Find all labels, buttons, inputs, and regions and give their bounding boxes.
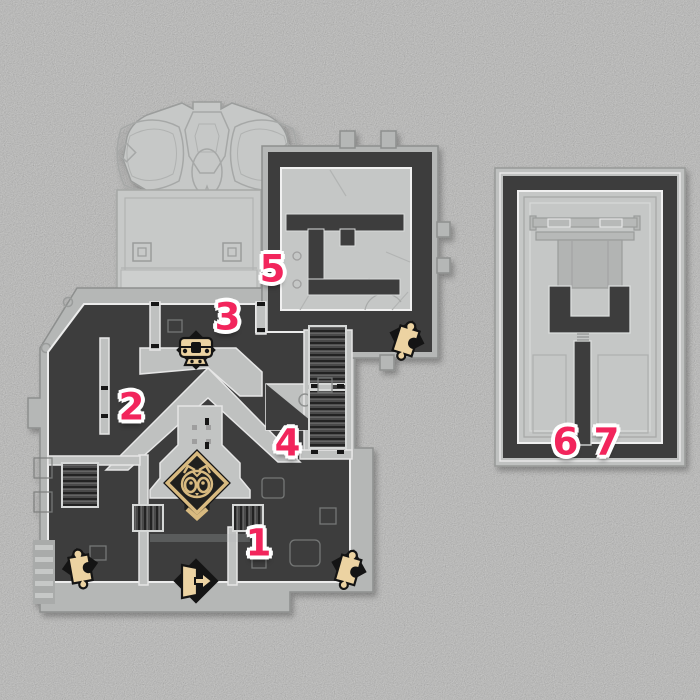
stairs-left <box>62 463 98 507</box>
stairs-right-lower <box>309 390 346 448</box>
side-map <box>495 168 685 466</box>
route-marker-2[interactable]: 2 <box>119 389 144 426</box>
route-marker-7[interactable]: 7 <box>594 424 619 461</box>
puzzle-piece-icon[interactable] <box>48 534 113 599</box>
route-marker-1[interactable]: 1 <box>246 525 271 562</box>
game-map-screenshot: 1 2 3 4 5 6 7 <box>0 0 700 700</box>
route-marker-4[interactable]: 4 <box>275 425 300 462</box>
stairs-center-left <box>133 505 163 531</box>
tanuki-icon[interactable] <box>161 447 233 537</box>
route-marker-6[interactable]: 6 <box>553 424 578 461</box>
treasure-chest-icon[interactable] <box>170 324 222 376</box>
route-marker-5[interactable]: 5 <box>260 251 285 288</box>
stairs-right-upper <box>309 326 346 384</box>
exit-door-icon[interactable] <box>168 553 224 609</box>
